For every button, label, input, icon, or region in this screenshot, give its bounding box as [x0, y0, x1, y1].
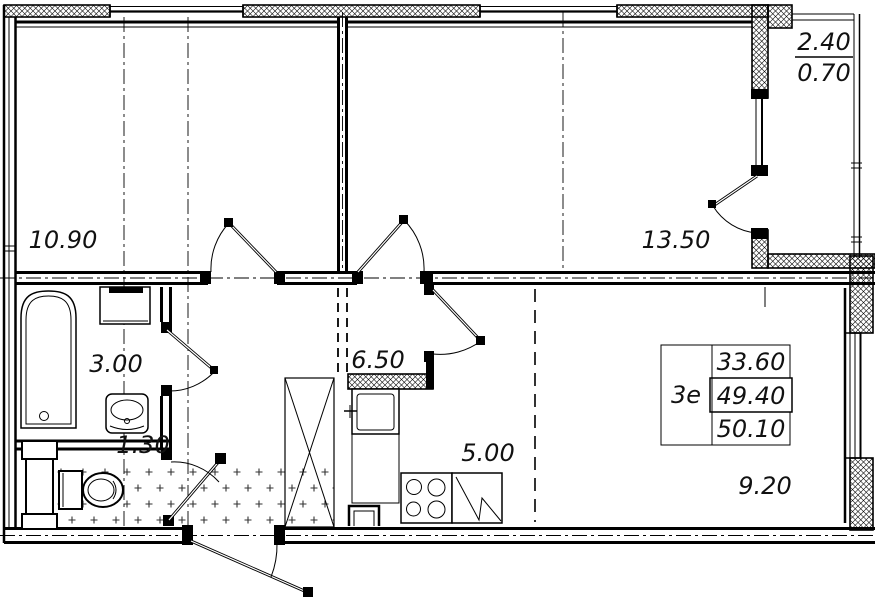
room-labels: 10.90 13.50 3.00 6.50 1.30 5.00 9.20	[29, 226, 792, 500]
balcony-area-full: 2.40	[797, 28, 850, 56]
bathtub	[21, 291, 76, 428]
toilet	[59, 471, 123, 509]
bathroom-sink	[106, 394, 148, 433]
hall-dashed-boundary	[338, 288, 347, 374]
door-room1	[200, 218, 285, 284]
right-wall-pier-top	[850, 256, 873, 333]
window-balcony-wall	[751, 89, 768, 168]
balcony-pier-top	[752, 5, 768, 98]
window-room2	[480, 5, 617, 17]
bathroom-area-label: 3.00	[89, 350, 142, 378]
top-wall-hatch-right	[617, 5, 768, 17]
floor-plan-canvas: 10.90 13.50 3.00 6.50 1.30 5.00 9.20 2.4…	[0, 0, 875, 600]
living-area-label: 9.20	[738, 472, 791, 500]
toilet-tank	[59, 471, 82, 509]
room1-area-label: 10.90	[29, 226, 98, 254]
pipe-chase	[22, 441, 57, 529]
room2-area-label: 13.50	[642, 226, 711, 254]
door-kitchen	[424, 284, 485, 362]
kitchen-duct	[349, 506, 379, 526]
left-wall-joint-ticks	[4, 246, 16, 251]
door-bathroom	[161, 322, 218, 396]
washing-machine	[100, 287, 150, 324]
window-living	[845, 333, 861, 458]
kitchen-sink	[344, 389, 399, 434]
kitchen-area-label: 5.00	[461, 439, 514, 467]
right-wall-pier-bottom	[850, 458, 873, 530]
walls	[4, 5, 875, 543]
area-row-2: 49.40	[717, 382, 786, 410]
balcony-corner-block	[768, 5, 792, 28]
balcony-area-reduced: 0.70	[797, 59, 850, 87]
kitchen-counter	[352, 434, 399, 503]
floor-plan-drawing: 10.90 13.50 3.00 6.50 1.30 5.00 9.20 2.4…	[0, 0, 875, 600]
kitchen-hatched-wall	[348, 374, 433, 389]
door-room2	[352, 215, 433, 284]
toilet-bowl	[83, 473, 123, 507]
door-balcony	[708, 165, 768, 239]
bathroom-wall	[162, 287, 171, 450]
refrigerator	[452, 473, 502, 523]
hall-area-label: 6.50	[351, 346, 404, 374]
area-row-1: 33.60	[717, 348, 786, 376]
top-wall-hatch-middle	[243, 5, 480, 17]
unit-info-table: 3е 33.60 49.40 50.10	[661, 345, 792, 445]
top-wall-hatch-left	[4, 5, 110, 17]
balcony-label: 2.40 0.70	[795, 28, 853, 87]
flat-type-label: 3е	[671, 381, 701, 409]
stove	[401, 473, 452, 523]
area-row-3: 50.10	[717, 415, 786, 443]
wc-area-label: 1.30	[116, 431, 169, 459]
window-room1	[110, 5, 243, 17]
